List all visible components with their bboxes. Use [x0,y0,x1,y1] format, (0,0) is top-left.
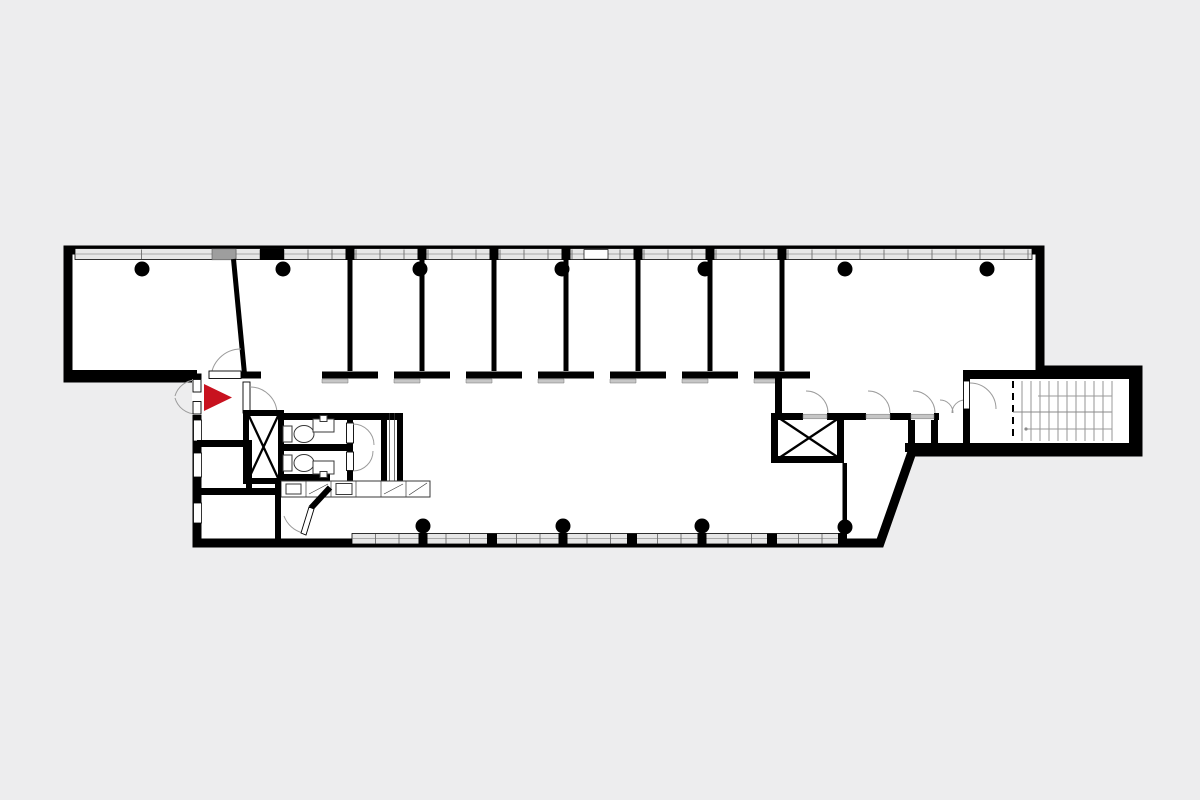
bowl [294,426,314,443]
column-dot [555,262,570,277]
counter-sink [286,484,301,494]
walk-line-start-dot [1024,427,1027,430]
column-dot [135,262,150,277]
closet-wall [931,420,938,445]
closet-wall [908,420,915,445]
window-segment [194,420,202,441]
stair-west-wall [963,377,970,381]
stair-door-leaf [964,381,970,409]
stub-wall-below-elevator [843,463,848,525]
column-dot [695,519,710,534]
tap [320,472,327,478]
stall-door-leaf [347,423,354,443]
toilet-fixture [283,455,314,472]
column-dot [556,519,571,534]
column-dot [838,262,853,277]
band-right-connector-wall [775,375,782,415]
shaft-wall-right [837,413,844,463]
room-wall [197,440,252,447]
tap [320,416,327,422]
entrance-door-leaf [193,402,201,415]
window-segment [194,453,202,477]
cistern [283,455,292,471]
bowl [294,455,314,472]
stall-door-leaf [347,452,354,471]
shaft-bar [397,413,403,481]
door-leaf [243,382,250,413]
floor-plan-canvas [0,0,1200,800]
entrance-door-leaf [193,380,201,393]
stall-mid-wall [278,444,353,451]
solid-facade-panel [260,249,284,260]
counter-sink [336,484,352,495]
door-sills [803,414,934,419]
stair-top-wall [963,370,1138,379]
cistern [283,426,292,442]
window-segment [194,503,202,523]
shaft-bar [381,413,387,481]
open-space-side-wall [275,481,281,543]
bottom-window-band [352,533,847,545]
column-dot [413,262,428,277]
stair-bottom-wall [905,443,1138,452]
column-dot [980,262,995,277]
left-window-segments [194,420,202,523]
door-leaf [209,371,241,379]
stair-right-wall [1129,370,1138,452]
top-window-band [75,248,1032,261]
stair-west-wall [963,409,970,443]
shaded-facade-panel [212,249,236,260]
open-window-segment [584,250,608,260]
column-dot [276,262,291,277]
vanity-counter [281,481,430,497]
toilet-fixture [283,426,314,443]
counter-outline [281,481,430,497]
band-bottom-wall [64,370,197,379]
room-wall [246,440,252,495]
shaft-wall-left [771,413,778,463]
column-dot [698,262,713,277]
room-wall [197,488,281,495]
column-dot [416,519,431,534]
